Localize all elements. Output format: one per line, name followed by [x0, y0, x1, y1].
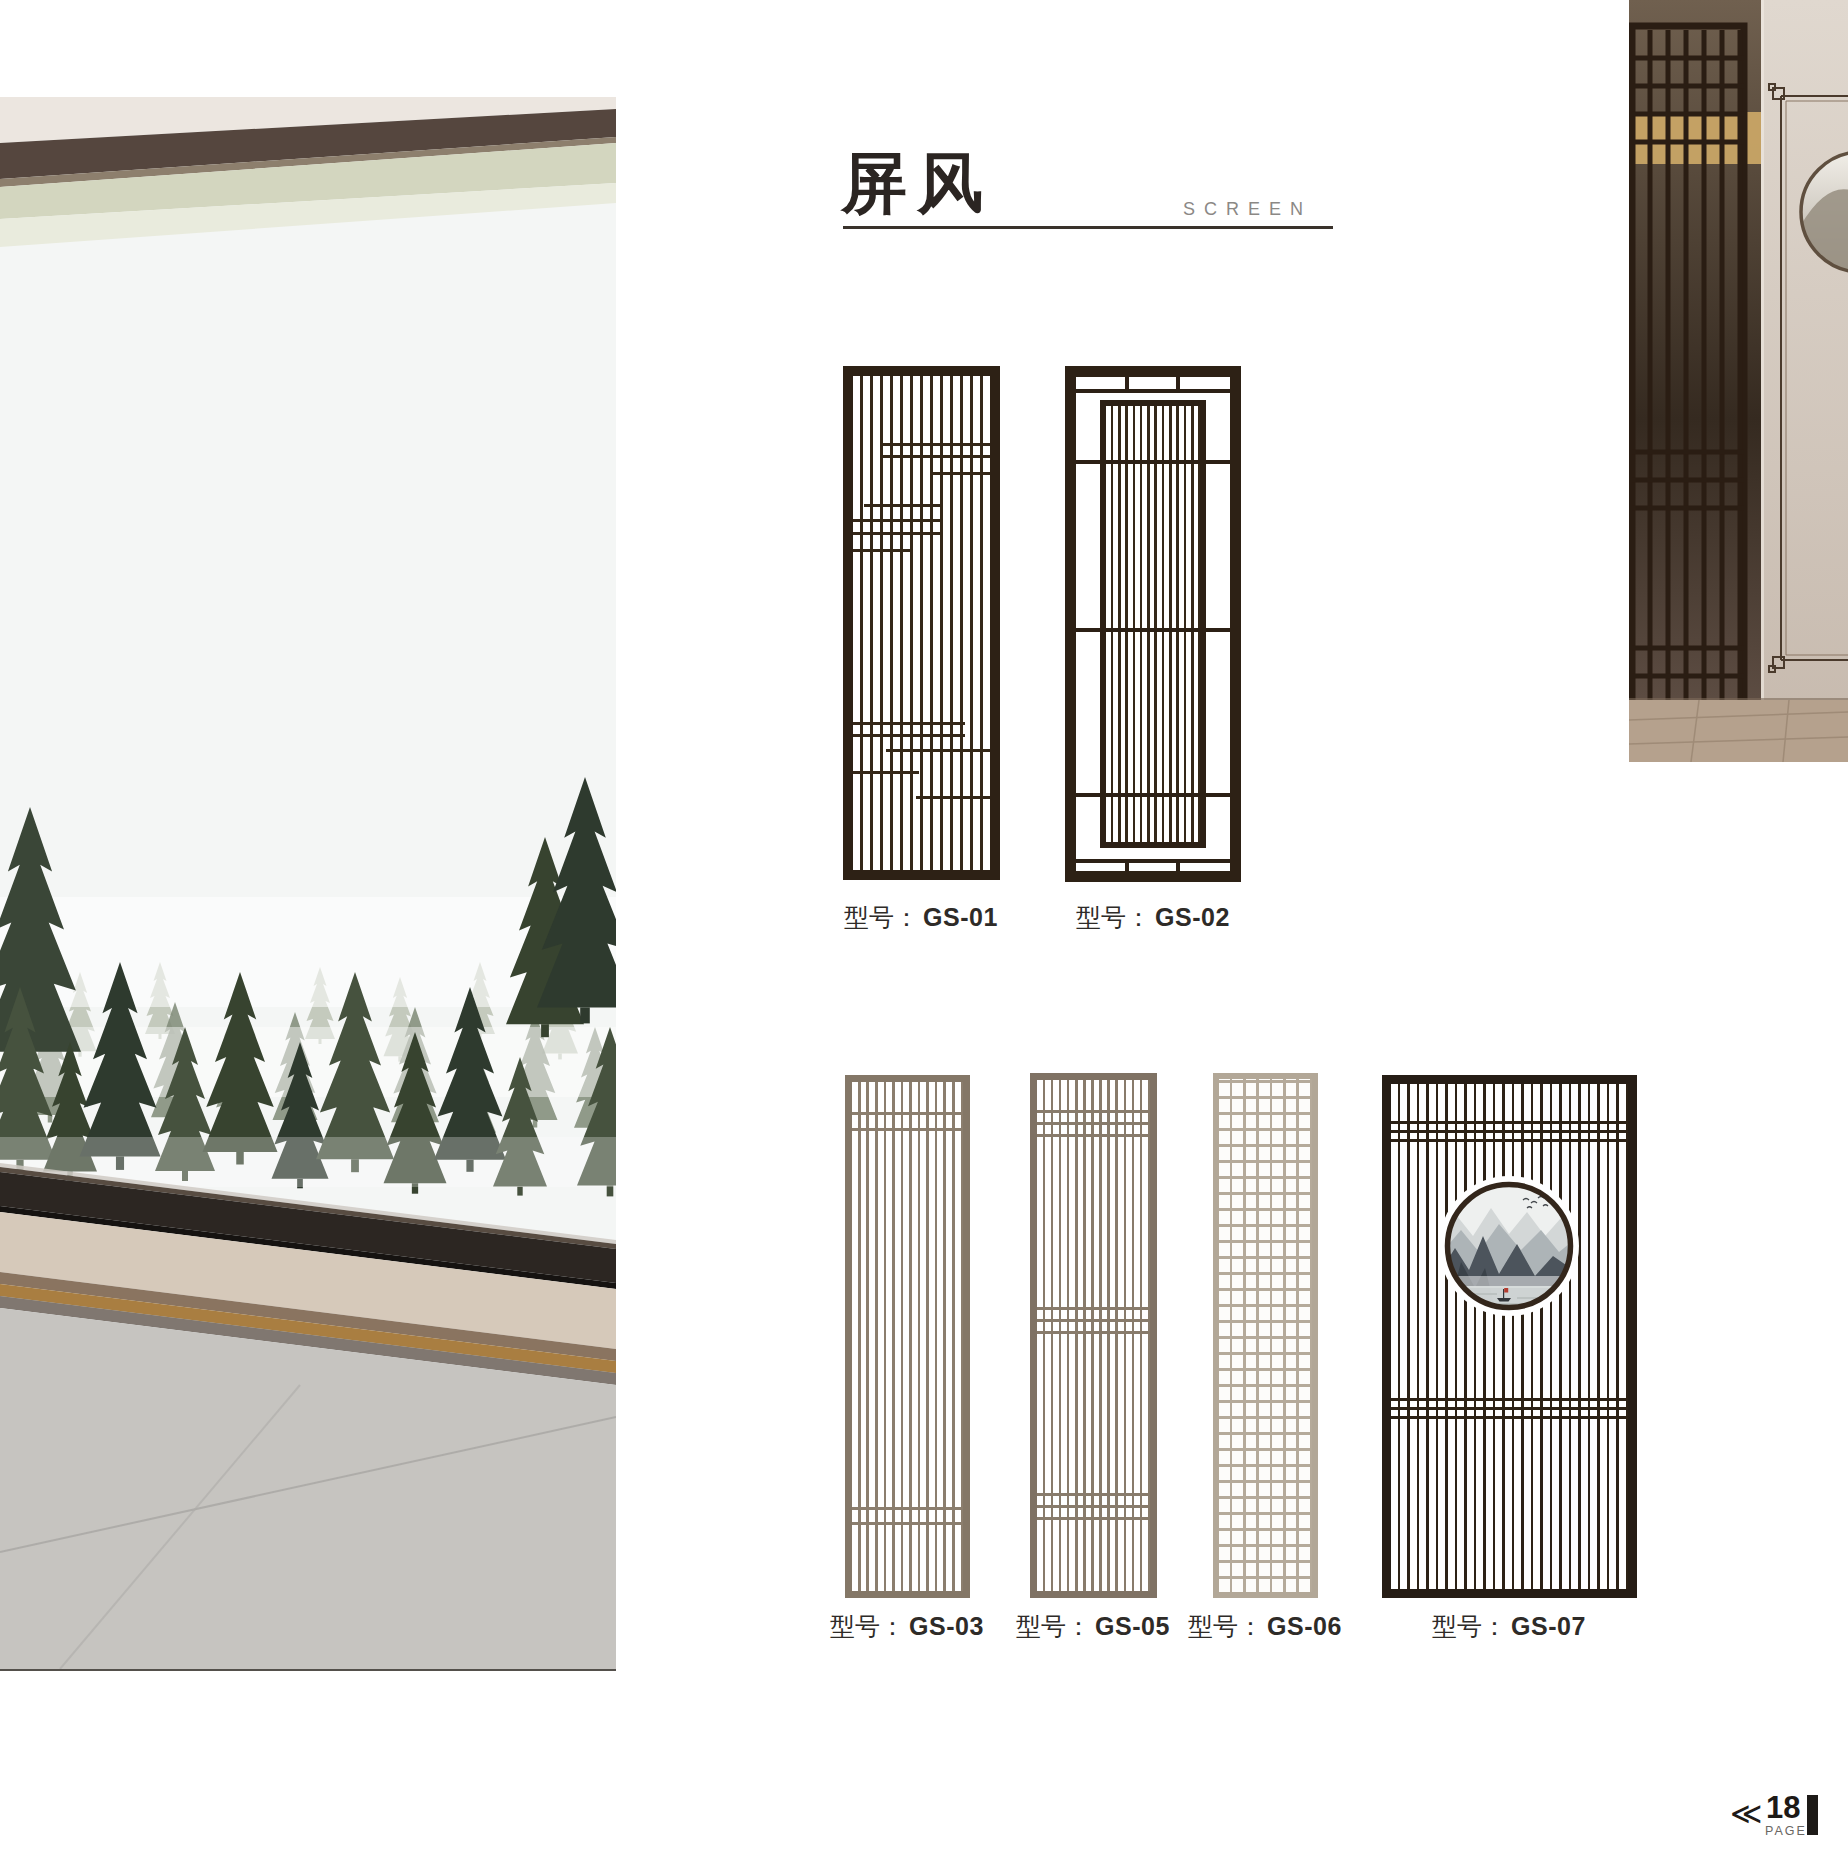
model-number: GS-03: [909, 1612, 984, 1640]
page-title: 屏风: [841, 150, 993, 216]
product-label-gs-07: 型号：GS-07: [1399, 1610, 1619, 1643]
screen-graphic-gs-06: [1213, 1073, 1318, 1598]
page-number: 18: [1766, 1791, 1800, 1825]
product-label-gs-01: 型号：GS-01: [811, 901, 1031, 934]
page-subtitle: SCREEN: [1183, 199, 1312, 220]
forest-window-illustration: [0, 97, 616, 1669]
model-prefix: 型号：: [1016, 1612, 1091, 1640]
ink-landscape-illustration: [1439, 1176, 1579, 1316]
model-number: GS-06: [1267, 1612, 1342, 1640]
screen-graphic-gs-05: [1030, 1073, 1157, 1598]
model-number: GS-02: [1155, 903, 1230, 931]
model-prefix: 型号：: [1188, 1612, 1263, 1640]
landscape-medallion: [1439, 1176, 1579, 1316]
model-prefix: 型号：: [830, 1612, 905, 1640]
screen-partition-illustration: [1629, 0, 1848, 762]
title-divider: [843, 226, 1333, 229]
page-marker-bar: [1807, 1795, 1818, 1835]
screen-graphic-gs-03: [845, 1075, 970, 1598]
model-prefix: 型号：: [844, 903, 919, 931]
model-prefix: 型号：: [1432, 1612, 1507, 1640]
prev-page-icon: ≪: [1730, 1795, 1762, 1832]
page-label: PAGE: [1765, 1824, 1807, 1838]
catalog-page: 屏风 SCREEN: [0, 0, 1848, 1866]
interior-photo-window-forest: [0, 97, 616, 1671]
product-label-gs-02: 型号：GS-02: [1043, 901, 1263, 934]
model-number: GS-01: [923, 903, 998, 931]
screen-graphic-gs-07: [1382, 1075, 1637, 1598]
screen-graphic-gs-01: [843, 366, 1000, 880]
model-number: GS-07: [1511, 1612, 1586, 1640]
model-prefix: 型号：: [1076, 903, 1151, 931]
screen-graphic-gs-02: [1065, 366, 1241, 882]
interior-photo-screen-partition: [1629, 0, 1848, 762]
wood-floor: [1629, 700, 1848, 762]
product-label-gs-06: 型号：GS-06: [1155, 1610, 1375, 1643]
